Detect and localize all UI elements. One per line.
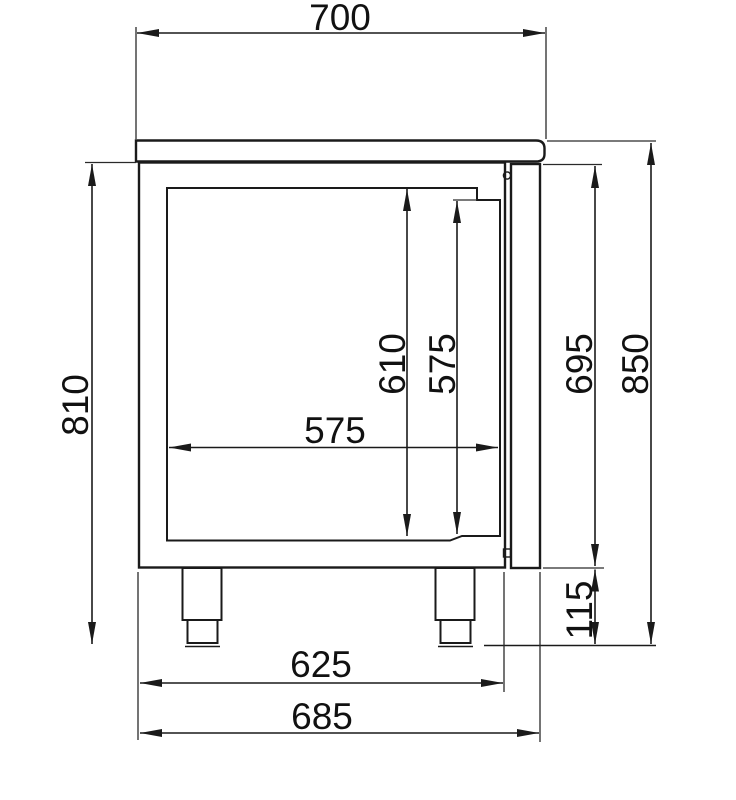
- dim-label-inner-width: 575: [304, 410, 366, 451]
- technical-drawing-canvas: 700 810 610 575 575 695 850 115 625 685: [0, 0, 736, 800]
- dim-label-leg-height: 115: [559, 581, 600, 640]
- door-panel: [511, 164, 540, 568]
- dim-label-inner-height: 610: [372, 333, 413, 395]
- dim-label-body-right-height: 695: [559, 333, 600, 395]
- worktop: [136, 141, 545, 162]
- left-foot-lower: [188, 620, 218, 643]
- furniture-outline: [136, 141, 545, 647]
- dim-label-inner-door-height: 575: [422, 333, 463, 395]
- left-foot: [183, 568, 222, 647]
- dim-label-top-width: 700: [309, 0, 371, 38]
- dim-label-left-height: 810: [55, 374, 96, 436]
- dimension-labels: 700 810 610 575 575 695 850 115 625 685: [55, 0, 656, 737]
- right-foot: [436, 568, 475, 647]
- dim-label-overall-depth: 685: [291, 696, 353, 737]
- left-foot-upper: [183, 568, 222, 620]
- dim-label-base-width: 625: [290, 644, 352, 685]
- dimension-drawing: 700 810 610 575 575 695 850 115 625 685: [0, 0, 736, 800]
- right-foot-lower: [441, 620, 471, 643]
- right-foot-upper: [436, 568, 475, 620]
- dim-label-total-height: 850: [615, 333, 656, 395]
